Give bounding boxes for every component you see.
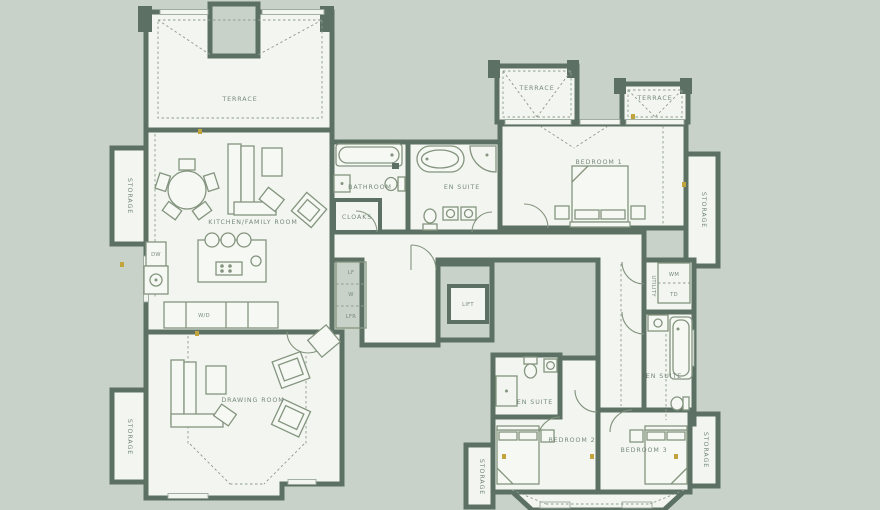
label-wm: WM [669, 272, 679, 278]
label-lift: LIFT [462, 302, 474, 308]
side-table-icon [262, 148, 282, 176]
label-wd: W/D [198, 313, 210, 319]
wall-pillar [138, 6, 152, 32]
label-ensuite-bed2: EN SUITE [517, 399, 553, 406]
tap-block [392, 163, 399, 169]
label-drawing-room: DRAWING ROOM [221, 397, 284, 404]
label-kitchen-family: KITCHEN/FAMILY ROOM [208, 219, 297, 226]
window [160, 10, 208, 15]
nightstand-icon [555, 206, 569, 219]
label-terrace-mid: TERRACE [518, 85, 554, 92]
toilet-cistern [524, 357, 537, 364]
window [262, 10, 324, 15]
toilet-cistern [423, 224, 437, 230]
side-table-icon [206, 366, 226, 394]
label-storage-left-lower: STORAGE [126, 419, 133, 455]
toilet-cistern [683, 397, 689, 410]
label-utility: UTILITY [650, 275, 656, 297]
table-top [168, 171, 206, 209]
sink-icon [648, 315, 668, 331]
headboard [570, 222, 630, 227]
floor-plan-svg: TERRACE TERRACE TERRACE STORAGE KITCHEN/… [0, 0, 880, 510]
toilet-bowl [424, 209, 436, 223]
label-storage-bottom-center: STORAGE [478, 459, 485, 495]
toilet-bowl [525, 364, 537, 378]
label-cloaks: CLOAKS [342, 214, 372, 221]
window [505, 120, 571, 125]
shower-drain [486, 154, 489, 157]
window [288, 480, 316, 485]
burner [220, 264, 224, 268]
sofa-seat [184, 362, 196, 420]
pendant-icon [221, 233, 235, 247]
label-storage-left-upper: STORAGE [126, 178, 133, 214]
marker-icon [120, 262, 124, 267]
marker-icon [195, 331, 199, 336]
tub-drain [677, 328, 680, 331]
label-bathroom: BATHROOM [348, 184, 392, 191]
window [580, 120, 620, 125]
marker-icon [631, 114, 635, 119]
burner [228, 269, 232, 273]
label-terrace-right: TERRACE [636, 95, 672, 102]
counter-run [164, 302, 278, 328]
room-terrace-mid [497, 66, 577, 122]
headboard [645, 426, 687, 430]
nightstand-icon [631, 206, 645, 219]
bathtub-icon-bathroom [336, 144, 402, 169]
nightstand-icon [630, 430, 643, 442]
toilet-cistern [398, 177, 405, 191]
bed-frame [645, 430, 687, 484]
toilet-bowl [671, 397, 683, 410]
pendant-icon [205, 233, 219, 247]
marker-icon [590, 454, 594, 459]
shower-drain [341, 182, 344, 185]
toilet-icon-ensuite-master [423, 209, 437, 230]
label-bedroom2: BEDROOM 2 [549, 437, 596, 444]
headboard [497, 426, 539, 430]
chair-icon [179, 159, 195, 170]
window [168, 494, 208, 499]
label-bedroom1: BEDROOM 1 [576, 159, 623, 166]
label-ensuite-bed3: EN SUITE [646, 373, 682, 380]
tub-drain [390, 153, 393, 156]
freestanding-bathtub-icon [417, 146, 464, 172]
shower-drain [505, 390, 508, 393]
sink-icon [544, 359, 557, 372]
floor-plan: TERRACE TERRACE TERRACE STORAGE KITCHEN/… [0, 0, 880, 510]
label-ensuite-master: EN SUITE [444, 184, 480, 191]
window [626, 120, 684, 125]
wall-pillar [567, 60, 579, 78]
label-cupboard-lfr: LFR [346, 314, 356, 320]
label-td: TD [669, 292, 678, 298]
label-terrace-tl: TERRACE [221, 96, 257, 103]
oven-dot [155, 279, 158, 282]
terrace-notch [210, 4, 258, 56]
marker-icon [198, 129, 202, 134]
burner [228, 264, 232, 268]
label-storage-right-upper: STORAGE [700, 192, 707, 228]
window [622, 502, 652, 508]
window [540, 502, 570, 508]
label-storage-bottom-right: STORAGE [702, 432, 709, 468]
sofa-seat [241, 146, 254, 208]
marker-icon [682, 182, 686, 187]
marker-icon [674, 454, 678, 459]
pendant-icon [237, 233, 251, 247]
burner [220, 269, 224, 273]
label-dw: DW [151, 252, 161, 258]
label-cupboard-lf: LF [348, 270, 354, 276]
wall-pillar [614, 78, 626, 94]
wall-pillar [488, 60, 500, 78]
label-cupboard-w: W [348, 292, 353, 298]
marker-icon [502, 454, 506, 459]
kitchen-island-icon [198, 233, 266, 282]
label-bedroom3: BEDROOM 3 [621, 447, 668, 454]
tub-drain [426, 158, 429, 161]
